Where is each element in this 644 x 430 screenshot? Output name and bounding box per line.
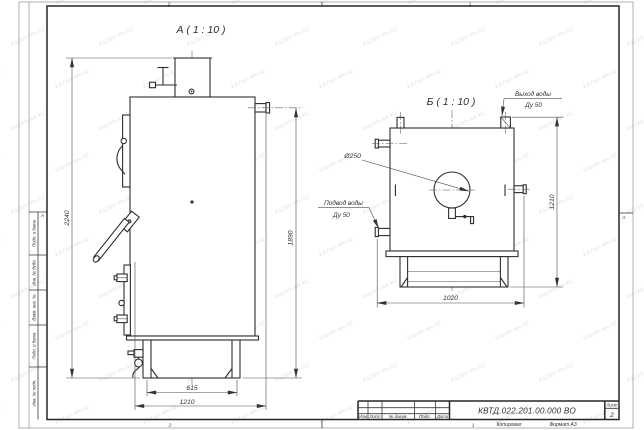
margin-cell-label: Инв. № подл. [31,380,36,407]
margin-cell-label: Взам. инв. № [31,294,36,321]
door-latch [119,300,124,305]
view-a-label: А ( 1 : 10 ) [175,24,225,36]
sheet-label: Лист [605,402,617,407]
door-knob [121,138,126,143]
sheet-frame [19,2,633,428]
dim-2240: 2240 [64,210,71,226]
zone-letter-right: А [621,215,625,220]
fitting-dot [463,215,466,218]
footer-labels: Копировал Формат А3 [497,422,577,428]
water-outlet-label-line1: Выход воды [515,90,551,98]
margin-column: Подп. и дата Инв. № дубл. Взам. инв. № П… [29,212,47,420]
water-inlet-stub [378,228,390,235]
dim-a-1210: 1210 [179,399,194,406]
outlet-leader [502,99,504,116]
footer-copied: Копировал [497,422,522,428]
col-data: Дата [436,414,449,419]
col-izm: Изм [359,414,367,419]
upper-door [123,115,130,187]
view-a-boiler [92,51,303,385]
flue-diameter-label: Ø250 [343,153,361,160]
damper-grip [150,82,156,87]
title-block: Изм Лист № докум. Подп. Дата КВТД.022.20… [358,401,619,420]
drain-cock-cap [128,351,134,355]
drain-spout [133,367,140,378]
sheet-number: 2 [609,412,614,419]
zone-number-bottom-left: 2 [168,422,172,427]
view-b-boiler [372,110,531,291]
footer-format: Формат А3 [549,422,577,428]
view-b-label: Б ( 1 : 10 ) [427,96,476,108]
inlet-leader [369,208,379,229]
boiler-body-side [130,97,255,336]
drawing-canvas: Подп. и дата Инв. № дубл. Взам. инв. № П… [0,0,644,430]
col-list: Лист [368,414,380,419]
water-outlet-label-line2: Ду 50 [524,102,542,109]
col-podp: Подп. [419,414,430,419]
doc-number: КВТД.022.201.00.000 ВО [478,407,576,416]
margin-cell-label: Подп. и дата [31,219,36,247]
engineering-drawing-sheet: kazan-wv.kzkazan-wv.kzkazan-wv.kzkazan-w… [0,0,644,430]
dim-1020: 1020 [443,295,458,302]
center-mark [190,200,193,203]
dim-b-1210: 1210 [549,194,556,209]
hinge-bolt-cap [114,276,117,280]
zone-number-top-right: 1 [469,1,472,6]
water-inlet-label-line1: Подвод воды [324,199,363,207]
water-inlet-label-line2: Ду 50 [332,212,350,219]
view-b: Б ( 1 : 10 ) [318,90,563,308]
bottom-flange-b [386,251,518,257]
sensor-fitting [449,208,456,218]
zone-number-top-left: 2 [167,1,171,6]
water-inlet-stub-cap [375,227,378,236]
bottom-flange [127,336,259,340]
margin-cell-label: Подп. и дата [31,332,36,360]
zone-number-bottom-right: 1 [472,422,475,427]
col-docnum: № докум. [389,414,408,419]
base-a [143,340,240,378]
drain-cock-ball [135,359,143,367]
drain-cock-body [134,350,143,358]
dim-1890: 1890 [288,230,295,245]
sheet-outer-edge [19,2,633,428]
damper-axle-dot [191,91,193,93]
zone-letter-left: А [40,213,44,218]
margin-cell-label: Инв. № дубл. [31,259,36,285]
view-a: А ( 1 : 10 ) [64,24,303,410]
fitting-elbow [471,217,474,224]
dim-615: 615 [186,385,198,392]
hinge-bolt-cap [114,317,117,321]
loading-lever [94,218,129,260]
